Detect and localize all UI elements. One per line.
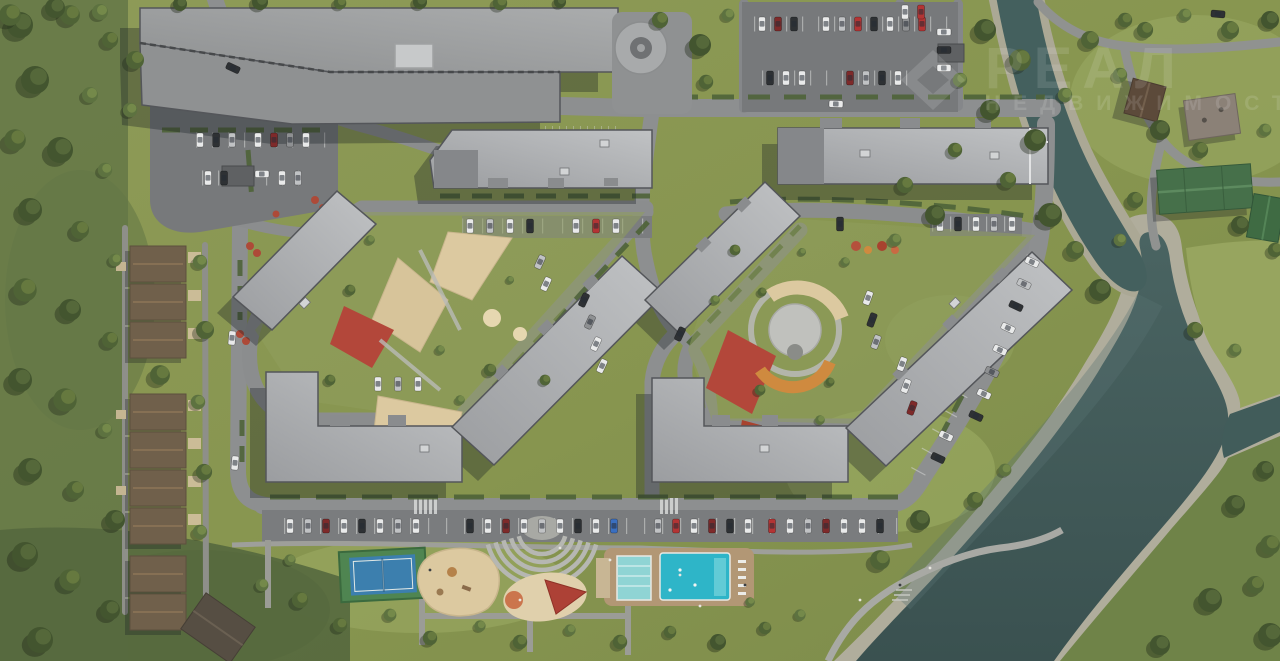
roof-skylight <box>395 44 433 68</box>
pool-steps <box>714 558 726 596</box>
lap-pool <box>617 556 651 600</box>
cabanas <box>596 558 610 598</box>
aerial-masterplan-render: Аэровид генплана жилого комплекса у реки… <box>0 0 1280 661</box>
house-green-long <box>1150 164 1254 222</box>
tennis-court <box>339 548 427 602</box>
sand-playground <box>418 548 499 616</box>
watermark-tagline: НЕДВИЖИМОСТЬ <box>985 92 1280 115</box>
pool-area <box>596 548 754 606</box>
play-equipment <box>447 567 457 577</box>
